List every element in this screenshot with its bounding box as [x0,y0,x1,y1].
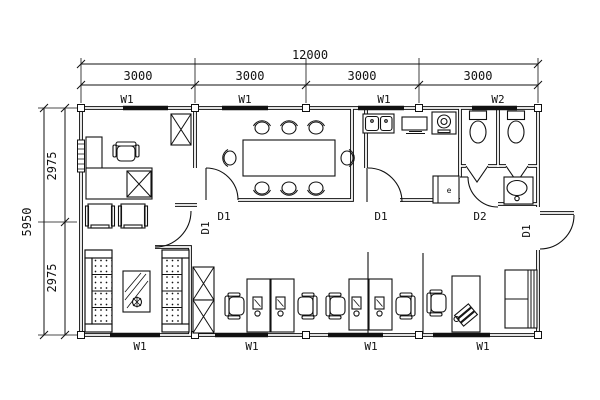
office-chair [326,293,345,319]
bookcase [505,270,537,328]
manager-desk [452,276,480,332]
conference-chair [254,182,271,195]
microwave [402,117,427,134]
kitchen-furniture: e [363,112,459,203]
column [535,332,542,339]
lounge-furniture [85,250,214,333]
conference-chair [308,182,325,195]
floor-plan-page: 12000 3000 3000 3000 3000 5950 2975 2975 [0,0,600,400]
toilet-icon [470,111,487,143]
door-d2-washroom [460,177,498,207]
window-label-w1-top-3: W1 [377,93,390,106]
open-office-furniture [225,252,537,333]
office-chair [298,293,317,319]
lounge-cabinet [193,267,214,333]
office-chair [427,290,446,316]
stove [432,112,456,134]
dim-bay-3: 3000 [348,69,377,83]
window-label-w1-bottom-4: W1 [476,340,489,353]
coffee-table [123,271,150,312]
workstation-desk [247,279,270,332]
kitchen-sink [363,114,394,133]
office-chair [396,293,415,319]
office-room-furniture [86,114,192,228]
conference-table [243,140,335,176]
window-label-w2-top: W2 [491,93,504,106]
door-label-d2-washroom: D2 [473,210,486,223]
door-d1-entrance [540,215,574,249]
column [416,105,423,112]
office-chair [225,293,244,319]
column [303,332,310,339]
window-label-w1-bottom-3: W1 [364,340,377,353]
door-label-d1-kitchen: D1 [374,210,387,223]
dim-bay-2: 3000 [236,69,265,83]
column [303,105,310,112]
window-label-w1-top-2: W1 [238,93,251,106]
dim-total-height: 5950 [20,208,34,237]
door-label-d1-entrance-rotated: D1 [520,224,533,237]
conference-chair [281,182,298,195]
office-chair [113,142,139,161]
desk-cabinet [127,171,151,197]
fridge-label: e [447,186,452,195]
door-d1-lounge [155,211,191,247]
column [192,105,199,112]
dim-total-width: 12000 [292,48,328,62]
conference-chair [281,121,298,134]
left-wall-window [78,140,85,172]
washroom-fixtures [470,111,534,204]
desk-return [86,137,102,170]
fridge: e [433,176,459,203]
column [416,332,423,339]
guest-chair [86,204,115,228]
cabinet [171,114,191,145]
column [535,105,542,112]
guest-chair [119,204,148,228]
conference-chair [308,121,325,134]
column [78,332,85,339]
door-label-d1-conference: D1 [217,210,230,223]
door-d1-kitchen [367,168,402,202]
window-label-w1-top-1: W1 [120,93,133,106]
dim-bay-1: 3000 [124,69,153,83]
window-label-w1-bottom-2: W1 [245,340,258,353]
door-d1-conference [206,168,238,200]
conference-chair [254,121,271,134]
column [78,105,85,112]
window-label-w1-bottom-1: W1 [133,340,146,353]
dim-bay-4: 3000 [464,69,493,83]
washbasin [504,177,533,204]
toilet-icon [508,111,525,143]
door-label-d1-lounge-rotated: D1 [199,221,212,234]
floor-plan-drawing: 12000 3000 3000 3000 3000 5950 2975 2975 [0,0,600,400]
dim-half-height-top: 2975 [45,152,59,181]
conference-chair [223,150,236,167]
dim-half-height-bottom: 2975 [45,264,59,293]
conference-room-furniture [223,121,355,196]
sofa-right [162,250,189,332]
sofa-left [85,250,112,332]
